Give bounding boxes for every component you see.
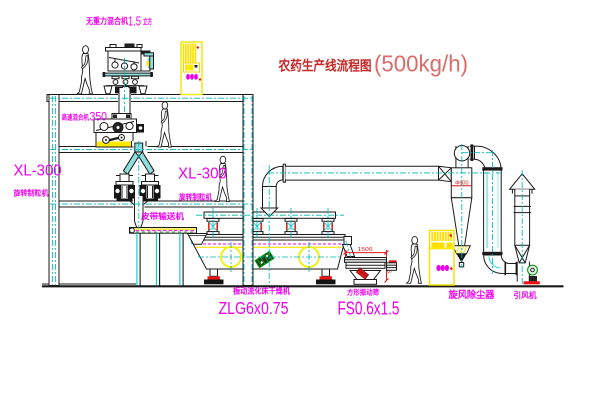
svg-text:1.5: 1.5 — [128, 15, 141, 29]
svg-text:农药生产线流程图: 农药生产线流程图 — [278, 58, 372, 74]
svg-text:引风机: 引风机 — [514, 290, 537, 300]
svg-text:旋风除尘器: 旋风除尘器 — [448, 289, 496, 300]
svg-text:振动流化床干燥机: 振动流化床干燥机 — [233, 286, 290, 296]
svg-text:FS0.6x1.5: FS0.6x1.5 — [338, 299, 400, 319]
svg-text:XL-300: XL-300 — [14, 163, 62, 180]
svg-text:皮带输送机: 皮带输送机 — [140, 211, 184, 221]
svg-text:无重力混合机: 无重力混合机 — [85, 15, 128, 26]
svg-text:高速混合机: 高速混合机 — [62, 113, 90, 122]
svg-text:1500: 1500 — [358, 247, 373, 253]
svg-text:XL-300: XL-300 — [178, 166, 227, 183]
svg-text:旋转制粒机: 旋转制粒机 — [178, 192, 212, 202]
svg-text:旋转制粒机: 旋转制粒机 — [13, 188, 49, 198]
svg-text:立方: 立方 — [143, 16, 152, 26]
svg-text:方形振动筛: 方形振动筛 — [347, 288, 379, 297]
svg-text:ZLG6x0.75: ZLG6x0.75 — [219, 298, 289, 318]
svg-text:Φ600: Φ600 — [455, 181, 469, 187]
svg-text:350: 350 — [90, 112, 108, 124]
svg-text:(500kg/h): (500kg/h) — [374, 51, 468, 77]
